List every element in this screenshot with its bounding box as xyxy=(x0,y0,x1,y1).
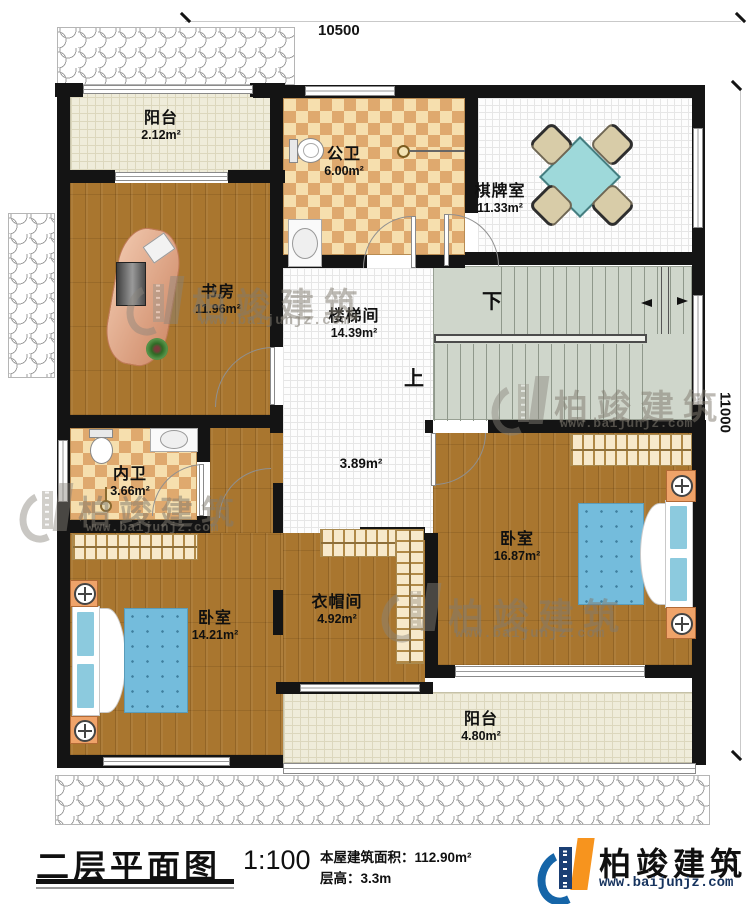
room-label-balcony-top: 阳台 2.12m² xyxy=(111,110,211,142)
plan-scale: 1:100 xyxy=(243,845,311,876)
watermark-logo xyxy=(492,376,550,432)
floor-height-line: 层高：3.3m xyxy=(320,867,391,887)
wall-hall-left-stub xyxy=(273,483,283,533)
room-label-bedroom-right: 卧室 16.87m² xyxy=(467,531,567,563)
public-bath-window xyxy=(305,86,395,96)
break-arrow-left xyxy=(641,299,652,307)
bedroom-left-window xyxy=(103,757,230,766)
chess-room-door-leaf xyxy=(444,214,449,266)
nightstand xyxy=(70,580,98,607)
room-label-balcony-bottom: 阳台 4.80m² xyxy=(431,711,531,743)
sink-icon xyxy=(160,430,188,449)
room-name: 阳台 xyxy=(431,711,531,729)
room-name: 阳台 xyxy=(111,110,211,128)
room-label-chess-room: 棋牌室 11.33m² xyxy=(450,183,550,215)
title-underline xyxy=(36,879,234,884)
wardrobe-rack xyxy=(72,534,198,560)
floor-plan-page: 10500 11000 下 上 xyxy=(0,0,750,904)
room-name: 棋牌室 xyxy=(450,183,550,201)
room-area: 4.80m² xyxy=(431,729,531,743)
stair-down-label: 下 xyxy=(482,285,502,314)
hall-area-label: 3.89m² xyxy=(311,456,411,471)
room-name: 公卫 xyxy=(294,146,394,164)
building-area-value: 112.90m² xyxy=(415,850,472,865)
wall-chess-bottom xyxy=(465,252,692,265)
room-name: 衣帽间 xyxy=(287,594,387,612)
room-area: 2.12m² xyxy=(111,128,211,142)
room-area: 4.92m² xyxy=(287,612,387,626)
wall-cloak-left-stub xyxy=(273,590,283,635)
building-area-label: 本屋建筑面积： xyxy=(320,850,415,865)
plant-icon xyxy=(146,338,168,360)
roof-hatch-left xyxy=(8,213,55,378)
nightstand xyxy=(70,716,98,744)
roof-hatch-top xyxy=(57,27,295,85)
knob-line xyxy=(409,150,465,152)
balcony-bottom-railing xyxy=(283,763,696,774)
watermark-logo xyxy=(382,583,442,641)
wall-balcony-divider-l xyxy=(57,170,115,183)
top-dimension-label: 10500 xyxy=(315,22,363,39)
room-label-bedroom-left: 卧室 14.21m² xyxy=(165,610,265,642)
stair-upper-flight xyxy=(501,267,693,334)
wardrobe-rack xyxy=(320,529,396,557)
bedroom-right-slider xyxy=(455,666,645,677)
toilet-icon xyxy=(90,437,113,464)
wall-study-bottom xyxy=(57,415,283,428)
nightstand xyxy=(666,607,696,639)
wardrobe-rack xyxy=(570,434,692,466)
room-area: 14.21m² xyxy=(165,628,265,642)
watermark-url: www.baijunjz.com xyxy=(200,313,350,329)
pillow xyxy=(75,662,96,710)
wall-bedr-top-l xyxy=(425,420,433,433)
balcony-top-railing xyxy=(83,85,253,94)
public-bath-door-leaf xyxy=(411,216,416,268)
dimension-tick xyxy=(731,80,742,91)
roof-hatch-bottom xyxy=(55,775,710,825)
room-name: 内卫 xyxy=(80,466,180,484)
cloakroom-window xyxy=(300,684,420,692)
room-name: 卧室 xyxy=(165,610,265,628)
pillow xyxy=(668,556,689,603)
floor-height-label: 层高： xyxy=(320,871,361,886)
watermark-url: www.baijunjz.com xyxy=(455,626,605,642)
study-door-leaf xyxy=(270,347,275,405)
brand-logo-icon xyxy=(538,838,596,898)
room-label-public-bath: 公卫 6.00m² xyxy=(294,146,394,178)
watermark-url: www.baijunjz.com xyxy=(86,520,219,535)
stair-break-line xyxy=(661,267,662,334)
room-area: 16.87m² xyxy=(467,549,567,563)
wall-bedr-bottom-l xyxy=(425,665,455,678)
watermark-logo xyxy=(127,276,185,332)
stair-break-line xyxy=(668,267,669,334)
floor-height-value: 3.3m xyxy=(361,871,392,886)
pillow xyxy=(668,504,689,551)
brand-url: www.baijunjz.com xyxy=(599,875,733,891)
nightstand xyxy=(666,470,696,502)
stair-railing xyxy=(434,334,647,343)
pillow xyxy=(75,610,96,658)
room-area: 6.00m² xyxy=(294,164,394,178)
room-label-cloakroom: 衣帽间 4.92m² xyxy=(287,594,387,626)
title-underline xyxy=(36,887,234,889)
watermark-url: www.baijunjz.com xyxy=(560,416,693,431)
room-name: 卧室 xyxy=(467,531,567,549)
bedroom-right-door-leaf xyxy=(431,433,436,486)
building-area-line: 本屋建筑面积：112.90m² xyxy=(320,846,472,866)
stair-up-label: 上 xyxy=(404,362,424,391)
right-dimension-line xyxy=(740,88,741,758)
top-dimension-line xyxy=(185,21,741,22)
sink-icon xyxy=(292,228,318,259)
wall-bedr-bottom-r xyxy=(645,665,692,678)
room-area: 3.89m² xyxy=(311,456,411,471)
room-area: 11.33m² xyxy=(450,201,550,215)
balcony-top-slider xyxy=(115,172,228,181)
watermark-logo xyxy=(20,483,74,539)
wall-privbath-right-u xyxy=(197,428,210,462)
break-arrow-right xyxy=(677,297,688,305)
chess-room-window xyxy=(693,128,703,228)
